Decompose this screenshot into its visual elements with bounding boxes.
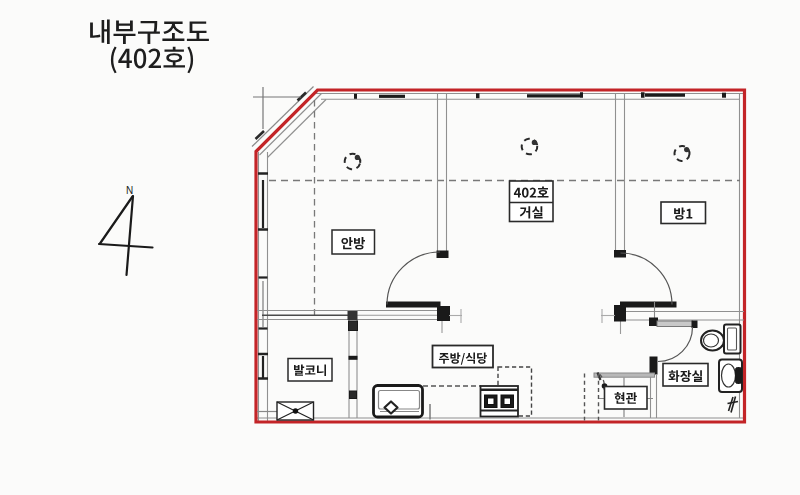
svg-text:N: N	[126, 185, 133, 196]
